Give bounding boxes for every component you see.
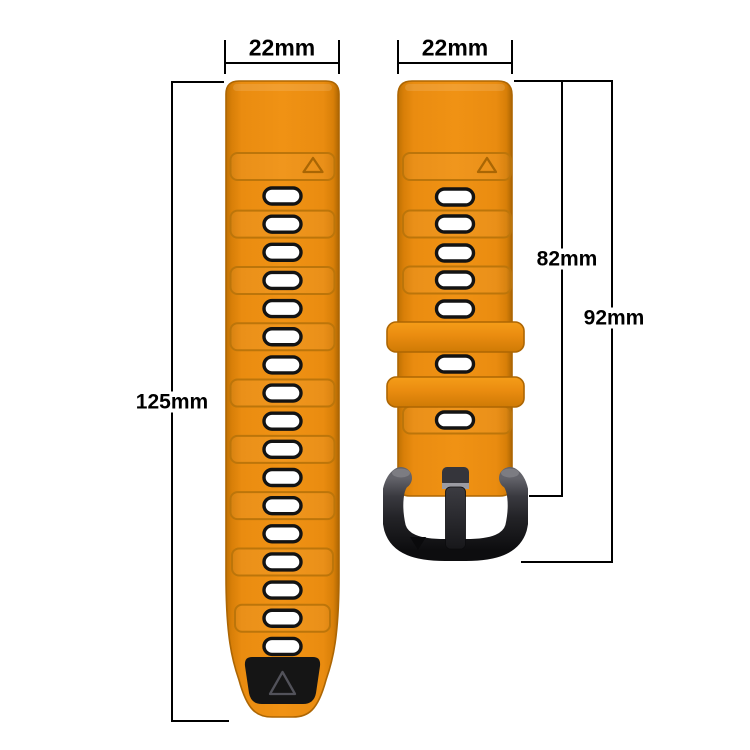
- dimension-tick: [224, 40, 226, 74]
- strap-hole: [264, 357, 301, 373]
- extension-line-top-right: [514, 80, 613, 82]
- width-dimension-line-right: [397, 62, 513, 64]
- strap-hole: [437, 356, 474, 372]
- width-dimension-line-left: [224, 62, 340, 64]
- strap-hole: [264, 554, 301, 570]
- right-strap-illustration: [383, 80, 528, 566]
- strap-hole: [437, 189, 474, 205]
- product-dimension-diagram: 22mm 22mm 125mm 82mm 92mm: [0, 0, 750, 750]
- extension-line-92-bottom: [521, 561, 613, 563]
- dim-label-right-total-length: 92mm: [581, 308, 648, 329]
- strap-hole: [264, 244, 301, 260]
- strap-highlight: [405, 84, 505, 91]
- strap-highlight: [233, 84, 332, 91]
- strap-panel: [403, 153, 511, 180]
- dim-label-left-width: 22mm: [246, 37, 318, 60]
- strap-hole: [264, 216, 301, 232]
- strap-hole: [264, 610, 301, 626]
- strap-hole: [437, 245, 474, 261]
- strap-hole: [264, 470, 301, 486]
- dimension-tick: [511, 40, 513, 74]
- strap-hole: [437, 301, 474, 317]
- strap-hole: [264, 441, 301, 457]
- extension-line-82-bottom: [529, 495, 563, 497]
- dimension-tick: [397, 40, 399, 74]
- length-dimension-line-82: [561, 81, 563, 496]
- strap-hole: [264, 329, 301, 345]
- strap-hole: [437, 412, 474, 428]
- strap-hole: [264, 498, 301, 514]
- extension-line-bottom-left: [172, 720, 229, 722]
- strap-hole: [264, 638, 301, 654]
- extension-line-top-left: [172, 81, 224, 83]
- strap-keeper: [387, 322, 524, 352]
- strap-hole: [264, 526, 301, 542]
- dim-label-left-length: 125mm: [133, 392, 211, 413]
- strap-hole: [264, 413, 301, 429]
- strap-hole: [437, 216, 474, 232]
- dimension-tick: [338, 40, 340, 74]
- buckle-tang: [446, 487, 466, 549]
- buckle-shine: [392, 469, 410, 478]
- buckle-shine: [501, 469, 519, 478]
- left-strap-illustration: [225, 80, 340, 725]
- strap-hole: [264, 301, 301, 317]
- strap-hole: [264, 385, 301, 401]
- strap-keeper: [387, 377, 524, 407]
- strap-hole: [264, 272, 301, 288]
- strap-tip: [245, 657, 320, 704]
- dim-label-right-strap-length: 82mm: [534, 249, 601, 270]
- strap-hole: [264, 188, 301, 204]
- dim-label-right-width: 22mm: [419, 37, 491, 60]
- strap-hole: [437, 272, 474, 288]
- strap-hole: [264, 582, 301, 598]
